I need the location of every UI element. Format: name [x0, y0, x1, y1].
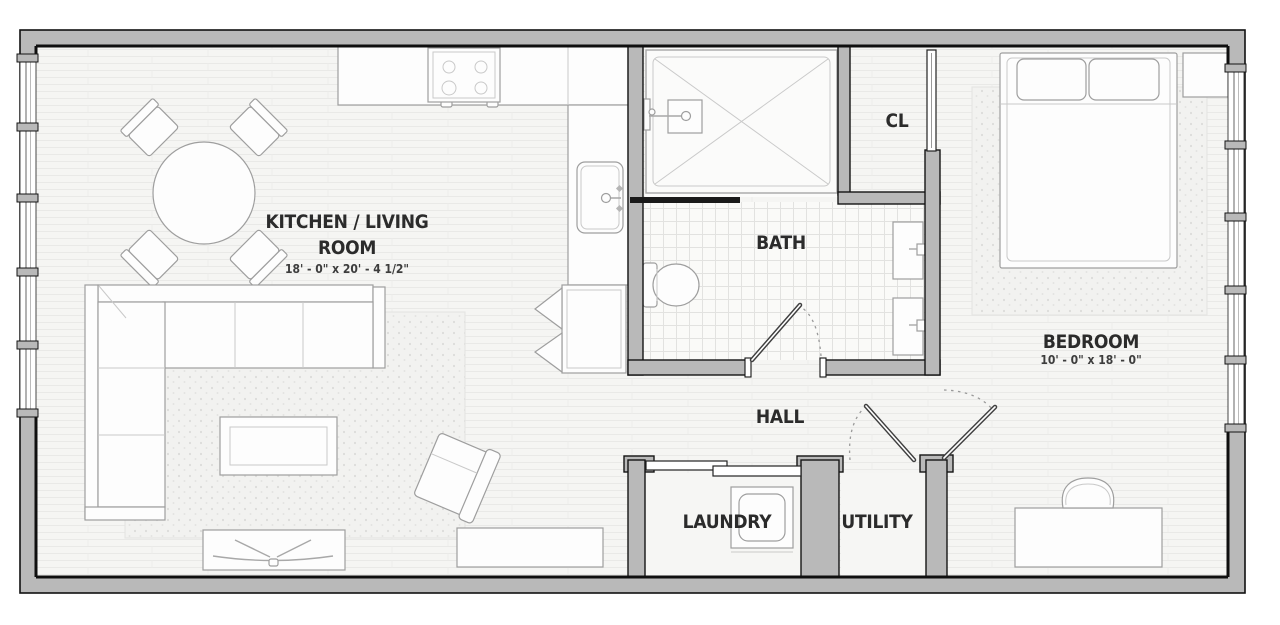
kitchen-sink-icon	[577, 162, 623, 233]
label-closet: CL	[886, 110, 910, 132]
window-mullion	[1225, 141, 1246, 149]
bed-icon	[1000, 53, 1177, 268]
window-mullion	[17, 194, 38, 202]
wall-north	[20, 30, 1245, 46]
window-mullion	[1225, 213, 1246, 221]
vanity-sink-icon	[893, 298, 925, 355]
label-kitchen-living-2: ROOM	[318, 237, 376, 259]
wall-west-bottom	[20, 411, 36, 593]
dining-table-icon	[153, 142, 255, 244]
window-icon	[1228, 68, 1244, 428]
vanity-sink-icon	[893, 222, 925, 279]
window-mullion	[17, 54, 38, 62]
wall-bath-south-right	[823, 360, 940, 375]
windows-west	[17, 54, 38, 417]
sliding-door-icon	[713, 466, 801, 476]
window-mullion	[1225, 64, 1246, 72]
wall-laundry-utility	[801, 460, 839, 577]
media-cabinet-icon	[457, 528, 603, 567]
wall-laundry-west	[628, 460, 645, 577]
pillow-icon	[1089, 59, 1159, 100]
floor-plan: KITCHEN / LIVING ROOM 18' - 0" x 20' - 4…	[0, 0, 1280, 625]
wall-east-top	[1228, 30, 1245, 68]
desk-icon	[1015, 508, 1162, 567]
window-mullion	[1225, 356, 1246, 364]
window-mullion	[17, 268, 38, 276]
wall-bath-south-left	[628, 360, 750, 375]
label-bedroom: BEDROOM	[1043, 331, 1139, 353]
window-icon	[20, 58, 36, 413]
label-laundry: LAUNDRY	[683, 511, 773, 533]
closet-sliding-door	[927, 50, 936, 151]
coffee-table-icon	[220, 417, 337, 475]
wall-shower-bath-divider	[630, 197, 740, 203]
windows-east	[1225, 64, 1246, 432]
door-jamb	[820, 358, 826, 377]
wall-east-bottom	[1228, 428, 1245, 593]
label-bedroom-dims: 10' - 0" x 18' - 0"	[1040, 352, 1141, 367]
wall-south	[20, 577, 1245, 593]
window-mullion	[1225, 424, 1246, 432]
label-kitchen-living-dims: 18' - 0" x 20' - 4 1/2"	[285, 261, 409, 276]
wall-utility-east	[926, 460, 947, 577]
wall-shower-closet	[838, 46, 850, 195]
cooktop-icon	[428, 48, 500, 102]
nightstand-icon	[1183, 53, 1228, 97]
window-mullion	[17, 409, 38, 417]
floor-plan-canvas: KITCHEN / LIVING ROOM 18' - 0" x 20' - 4…	[0, 0, 1280, 625]
toilet-icon	[643, 263, 699, 307]
window-mullion	[17, 341, 38, 349]
wall-kitchen-bath	[628, 46, 643, 375]
tv-console-icon	[203, 530, 345, 570]
pillow-icon	[1017, 59, 1086, 100]
window-mullion	[17, 123, 38, 131]
label-bath: BATH	[756, 232, 806, 254]
wall-bath-bedroom	[925, 150, 940, 375]
desk-chair-icon	[1062, 478, 1113, 508]
window-mullion	[1225, 286, 1246, 294]
label-hall: HALL	[756, 406, 805, 428]
label-utility: UTILITY	[841, 511, 913, 533]
label-kitchen-living-1: KITCHEN / LIVING	[265, 211, 428, 233]
